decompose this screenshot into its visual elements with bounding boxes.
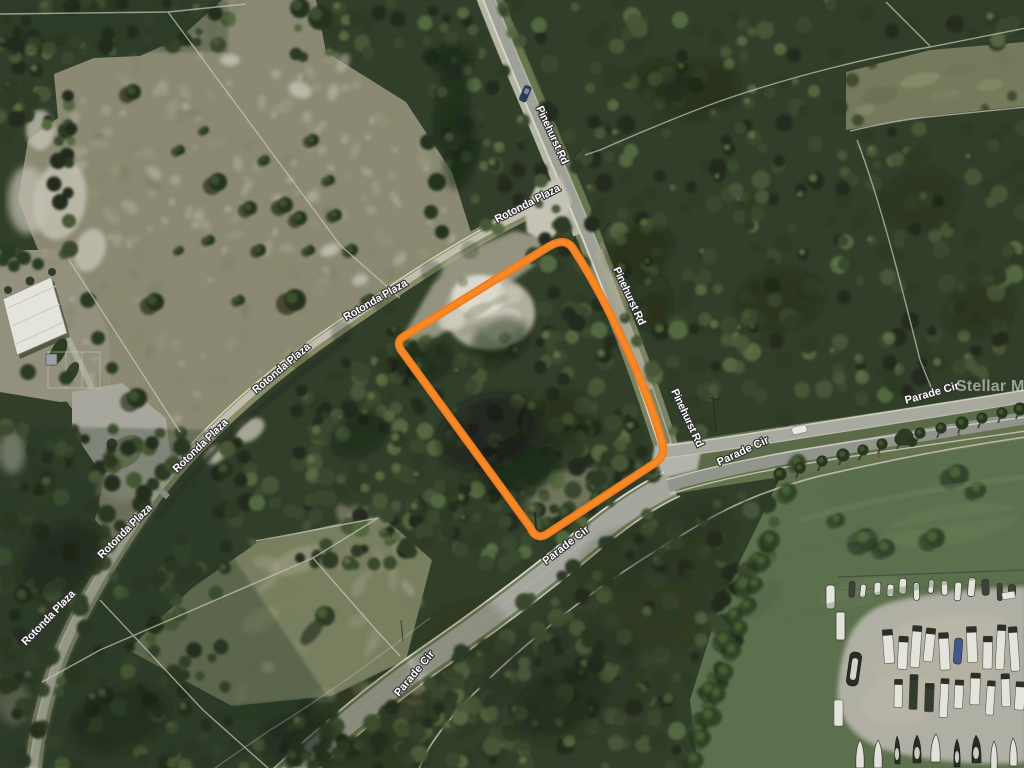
svg-text:Stellar MLS: Stellar MLS (956, 378, 1024, 395)
